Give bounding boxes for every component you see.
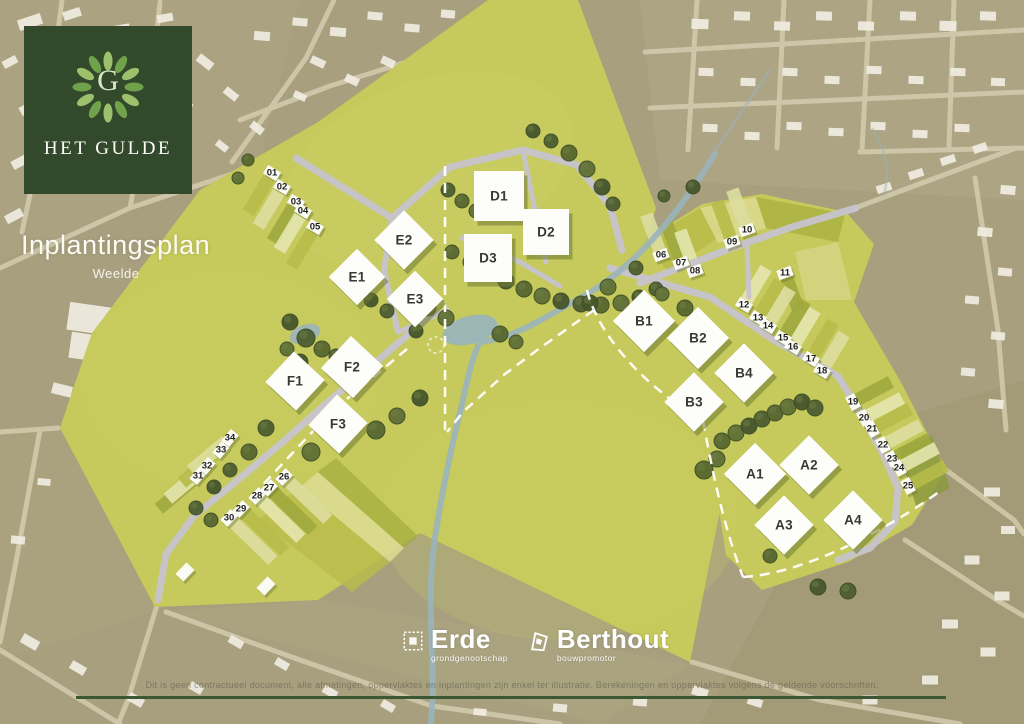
lot-label-01: 01 [267, 168, 278, 179]
partner-logos: Erde grondgenootschap Berthout bouwpromo… [402, 626, 669, 663]
partner-berthout: Berthout bouwpromotor [528, 626, 669, 663]
lot-label-08: 08 [690, 266, 701, 277]
lot-label-33: 33 [216, 445, 227, 456]
partner-erde: Erde grondgenootschap [402, 626, 508, 663]
block-label-A2: A2 [800, 458, 818, 473]
block-label-E2: E2 [395, 233, 412, 248]
lot-label-17: 17 [806, 354, 817, 365]
lot-label-30: 30 [224, 513, 235, 524]
lot-label-25: 25 [903, 481, 914, 492]
lot-label-14: 14 [763, 321, 774, 332]
erde-grid-icon [402, 630, 424, 652]
block-label-D3: D3 [479, 251, 497, 266]
lot-label-28: 28 [252, 491, 263, 502]
block-label-B1: B1 [635, 314, 653, 329]
lot-label-04: 04 [298, 206, 309, 217]
site-plan-page: 0102030405060708091011121314151617181920… [0, 0, 1024, 724]
lot-label-26: 26 [279, 472, 290, 483]
block-label-E1: E1 [348, 270, 365, 285]
lot-label-27: 27 [264, 483, 275, 494]
berthout-tagline: bouwpromotor [557, 653, 669, 663]
footer-divider [76, 696, 946, 699]
block-label-B2: B2 [689, 331, 707, 346]
block-label-A1: A1 [746, 467, 764, 482]
lot-label-31: 31 [193, 471, 204, 482]
lot-label-12: 12 [739, 300, 750, 311]
block-label-F1: F1 [287, 374, 304, 389]
lot-label-09: 09 [727, 237, 738, 248]
page-subtitle: Weelde [21, 266, 211, 281]
berthout-name: Berthout [557, 626, 669, 652]
page-title: Inplantingsplan [21, 230, 221, 261]
lot-label-10: 10 [742, 225, 753, 236]
lot-label-22: 22 [878, 440, 889, 451]
block-label-E3: E3 [406, 292, 423, 307]
lot-label-34: 34 [225, 433, 236, 444]
block-label-A4: A4 [844, 513, 862, 528]
logo-monogram: G [97, 64, 119, 98]
lot-label-11: 11 [780, 268, 791, 279]
disclaimer-text: Dit is geen contractueel document, alle … [0, 680, 1024, 690]
lot-label-06: 06 [656, 250, 667, 261]
brand-name: HET GULDE [24, 138, 192, 160]
lot-label-05: 05 [310, 222, 321, 233]
lot-label-20: 20 [859, 413, 870, 424]
block-label-F3: F3 [330, 417, 347, 432]
lot-label-21: 21 [867, 424, 878, 435]
lot-label-18: 18 [817, 366, 828, 377]
lot-label-29: 29 [236, 504, 247, 515]
lot-label-16: 16 [788, 342, 799, 353]
erde-name: Erde [431, 626, 508, 652]
brand-logo-card: G HET GULDE [24, 26, 192, 194]
block-label-B3: B3 [685, 395, 703, 410]
lot-label-32: 32 [202, 461, 213, 472]
block-label-D2: D2 [537, 225, 555, 240]
lot-label-24: 24 [894, 463, 905, 474]
block-label-D1: D1 [490, 189, 508, 204]
lot-label-02: 02 [277, 182, 288, 193]
lot-label-07: 07 [676, 258, 687, 269]
block-label-F2: F2 [344, 360, 360, 375]
berthout-cube-icon [528, 630, 550, 652]
block-label-B4: B4 [735, 366, 753, 381]
block-label-A3: A3 [775, 518, 793, 533]
lot-label-13: 13 [753, 313, 764, 324]
erde-tagline: grondgenootschap [431, 653, 508, 663]
lot-label-19: 19 [848, 397, 859, 408]
